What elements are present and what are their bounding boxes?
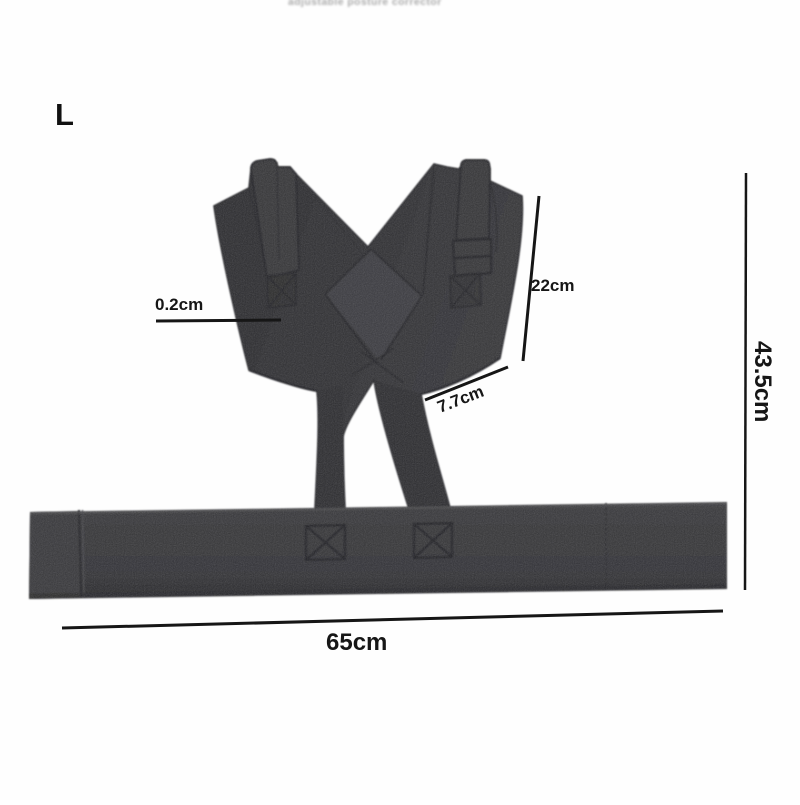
svg-text:adjustable posture corrector: adjustable posture corrector [288,0,442,8]
svg-text:22cm: 22cm [531,276,574,295]
svg-text:65cm: 65cm [326,629,387,656]
svg-text:L: L [55,97,74,132]
svg-text:43.5cm: 43.5cm [749,341,776,422]
svg-text:0.2cm: 0.2cm [155,295,203,314]
